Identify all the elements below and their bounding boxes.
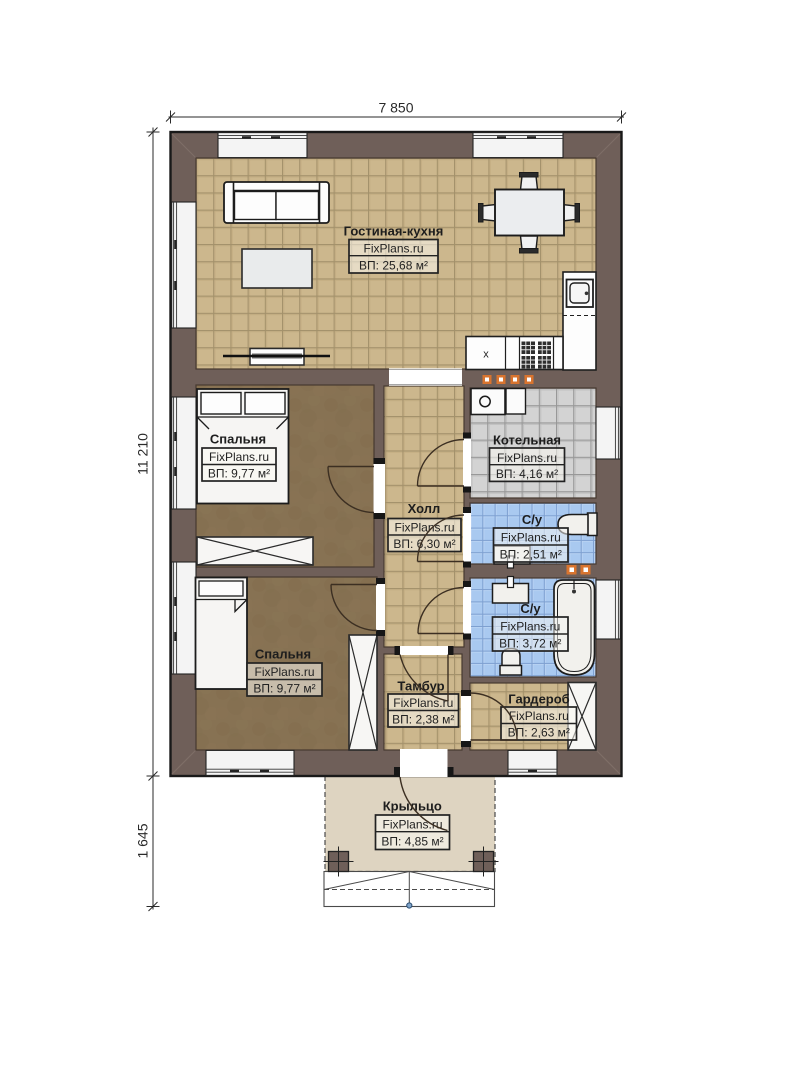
svg-text:ВП: 9,77 м²: ВП: 9,77 м² bbox=[253, 682, 315, 696]
svg-text:FixPlans.ru: FixPlans.ru bbox=[497, 451, 557, 465]
svg-text:FixPlans.ru: FixPlans.ru bbox=[394, 521, 454, 535]
svg-text:С/у: С/у bbox=[522, 512, 543, 527]
svg-text:Холл: Холл bbox=[408, 501, 441, 516]
svg-text:ВП: 6,30 м²: ВП: 6,30 м² bbox=[393, 537, 455, 551]
svg-text:FixPlans.ru: FixPlans.ru bbox=[501, 531, 561, 545]
svg-text:Котельная: Котельная bbox=[493, 433, 561, 448]
svg-text:Гардероб: Гардероб bbox=[508, 692, 569, 707]
svg-text:FixPlans.ru: FixPlans.ru bbox=[209, 450, 269, 464]
svg-text:ВП: 4,85 м²: ВП: 4,85 м² bbox=[381, 835, 443, 849]
svg-text:7 850: 7 850 bbox=[378, 100, 413, 116]
svg-text:Спальня: Спальня bbox=[255, 647, 311, 662]
svg-text:FixPlans.ru: FixPlans.ru bbox=[509, 709, 569, 723]
svg-text:ВП: 2,38 м²: ВП: 2,38 м² bbox=[392, 713, 454, 727]
svg-text:ВП: 3,72 м²: ВП: 3,72 м² bbox=[499, 637, 561, 651]
svg-text:ВП: 25,68 м²: ВП: 25,68 м² bbox=[359, 259, 428, 273]
svg-text:x: x bbox=[483, 349, 489, 361]
svg-text:ВП: 4,16 м²: ВП: 4,16 м² bbox=[496, 467, 558, 481]
svg-text:ВП: 9,77 м²: ВП: 9,77 м² bbox=[208, 467, 270, 481]
svg-text:С/у: С/у bbox=[520, 601, 541, 616]
svg-text:FixPlans.ru: FixPlans.ru bbox=[363, 242, 423, 256]
svg-text:Спальня: Спальня bbox=[210, 432, 266, 447]
svg-text:ВП: 2,51 м²: ВП: 2,51 м² bbox=[500, 548, 562, 562]
svg-text:Гостиная-кухня: Гостиная-кухня bbox=[344, 224, 444, 239]
svg-text:FixPlans.ru: FixPlans.ru bbox=[254, 665, 314, 679]
svg-text:FixPlans.ru: FixPlans.ru bbox=[393, 696, 453, 710]
svg-text:FixPlans.ru: FixPlans.ru bbox=[500, 620, 560, 634]
svg-text:Тамбур: Тамбур bbox=[397, 679, 444, 694]
svg-text:11 210: 11 210 bbox=[135, 433, 151, 475]
svg-text:1 645: 1 645 bbox=[135, 823, 151, 858]
